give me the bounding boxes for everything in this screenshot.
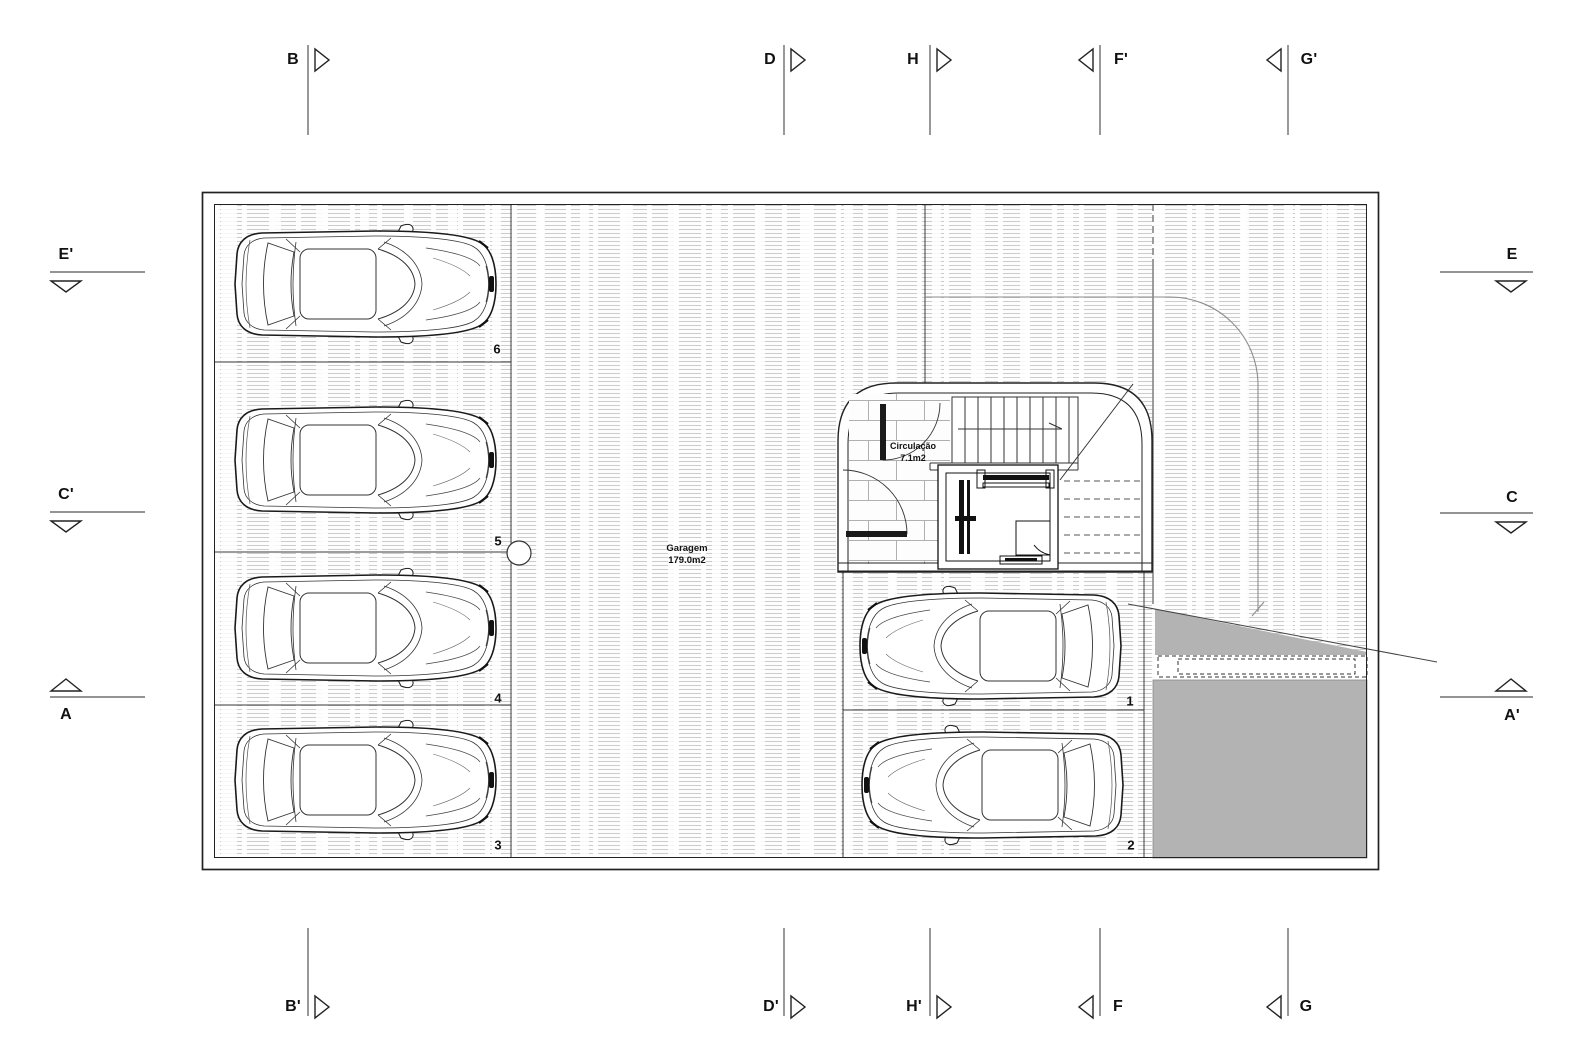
section-marker-arrows xyxy=(51,49,1526,1018)
section-label-E: E xyxy=(1507,247,1518,263)
section-label-A2: A' xyxy=(1504,708,1520,724)
circulation-area-value: 7.1m2 xyxy=(890,452,936,464)
plan-linework xyxy=(0,0,1572,1058)
circulation-area-label: Circulação 7.1m2 xyxy=(890,440,936,464)
car-stall-2 xyxy=(862,725,1123,844)
garage-area-value: 179.0m2 xyxy=(666,555,707,567)
section-label-H: H xyxy=(907,52,919,68)
section-label-E2: E' xyxy=(59,247,74,263)
section-label-F2: F' xyxy=(1114,52,1128,68)
circulation-core xyxy=(838,383,1152,572)
section-label-C2: C' xyxy=(58,487,74,503)
ramp-area xyxy=(1153,609,1367,858)
car-stall-5 xyxy=(235,400,496,519)
garage-name: Garagem xyxy=(666,543,707,555)
circulation-name: Circulação xyxy=(890,440,936,452)
section-label-A: A xyxy=(60,707,72,723)
elevator-room xyxy=(938,465,1058,569)
column-marker xyxy=(507,541,531,565)
car-stall-6 xyxy=(235,224,496,343)
section-label-H2: H' xyxy=(906,999,922,1015)
lobby-tile-floor xyxy=(849,394,950,564)
car-stall-4 xyxy=(235,568,496,687)
section-label-D2: D' xyxy=(763,999,779,1015)
car-stall-3 xyxy=(235,720,496,839)
garage-area-label: Garagem 179.0m2 xyxy=(666,543,707,567)
car-stall-1 xyxy=(860,586,1121,705)
section-label-F: F xyxy=(1113,999,1123,1015)
stall-number-3: 3 xyxy=(494,839,501,852)
stall-number-6: 6 xyxy=(493,343,500,356)
section-label-G: G xyxy=(1300,999,1313,1015)
stall-number-2: 2 xyxy=(1127,839,1134,852)
section-label-C: C xyxy=(1506,490,1518,506)
section-label-B2: B' xyxy=(285,999,301,1015)
section-label-D: D xyxy=(764,52,776,68)
section-label-G2: G' xyxy=(1301,52,1318,68)
stall-number-4: 4 xyxy=(494,692,501,705)
stall-number-5: 5 xyxy=(494,535,501,548)
garage-floor-plan: B D H F' G' B' D' H' F G E' C' A E C A' … xyxy=(0,0,1572,1058)
section-label-B: B xyxy=(287,52,299,68)
stall-number-1: 1 xyxy=(1126,695,1133,708)
